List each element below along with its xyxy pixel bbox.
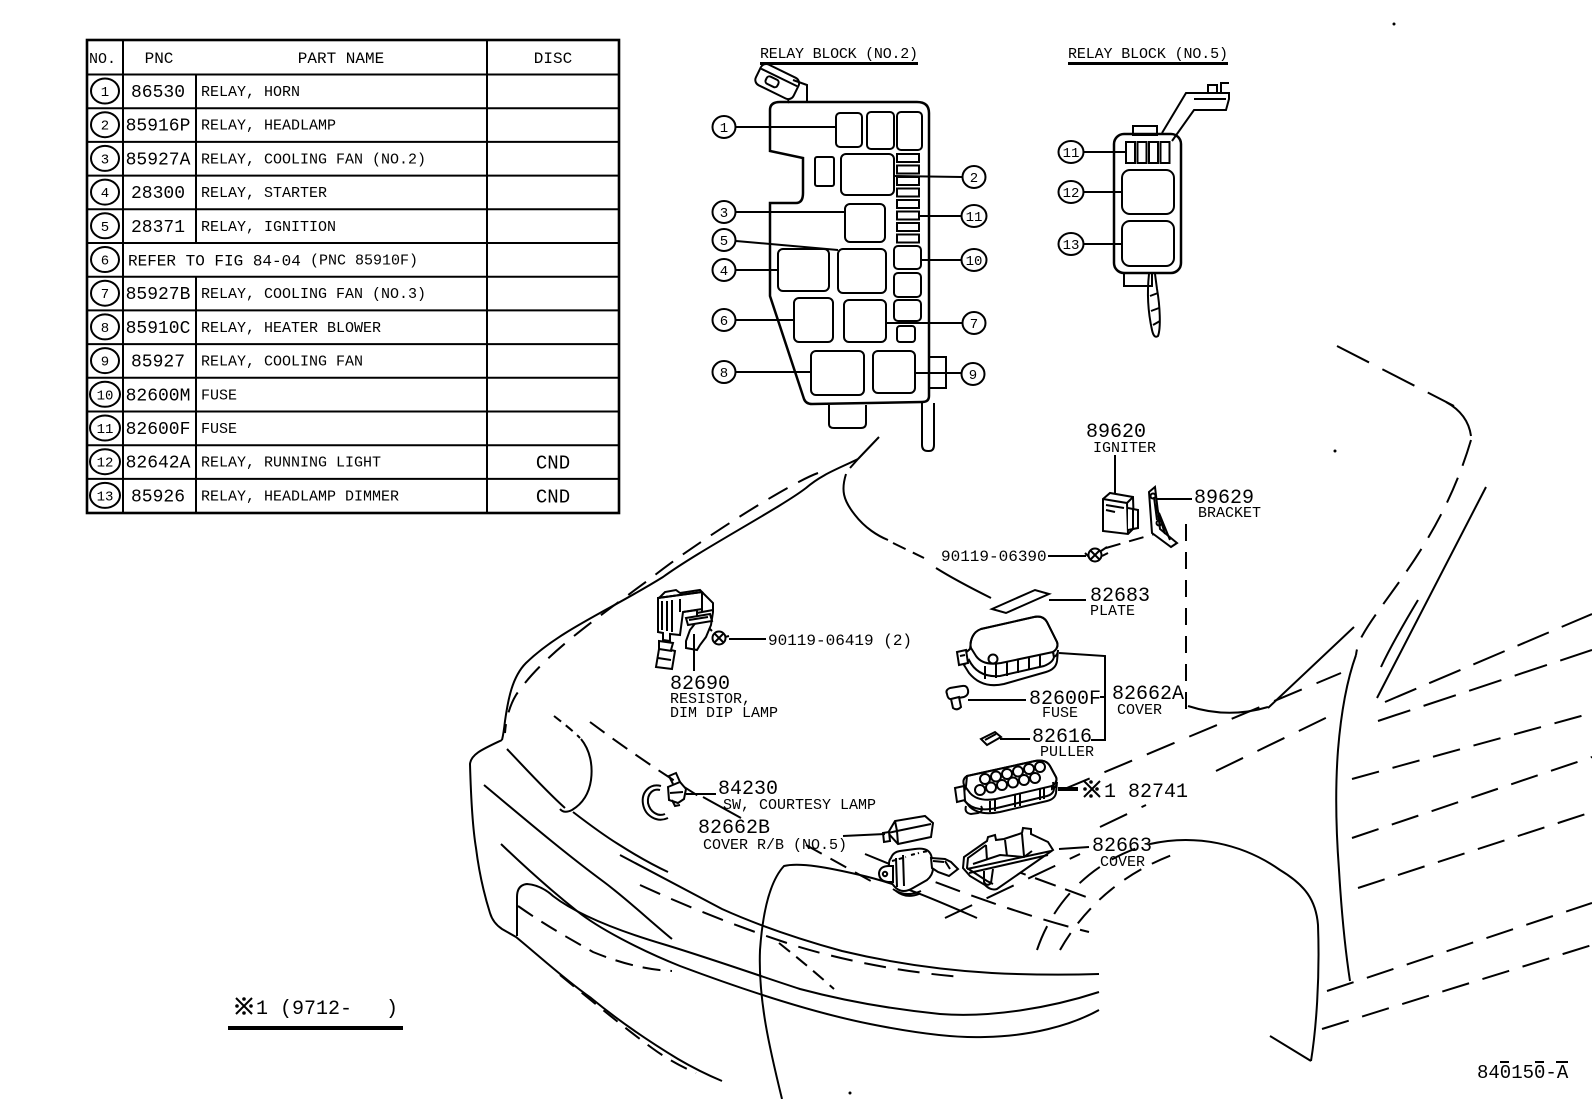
svg-text:6: 6 (720, 314, 728, 330)
svg-text:85927A: 85927A (126, 150, 191, 170)
svg-text:PART NAME: PART NAME (298, 50, 384, 68)
svg-text:11: 11 (1063, 146, 1080, 162)
svg-text:FUSE: FUSE (201, 387, 237, 404)
svg-text:6: 6 (101, 254, 109, 270)
svg-text:1: 1 (720, 121, 728, 137)
svg-text:5: 5 (101, 220, 109, 236)
svg-text:11: 11 (97, 422, 114, 438)
svg-text:PULLER: PULLER (1040, 744, 1094, 761)
svg-text:5: 5 (720, 234, 728, 250)
svg-text:3: 3 (720, 206, 728, 222)
svg-text:9: 9 (969, 368, 977, 384)
svg-text:REFER TO FIG 84-04: REFER TO FIG 84-04 (128, 253, 301, 271)
svg-text:CND: CND (536, 453, 570, 475)
svg-text:FUSE: FUSE (201, 421, 237, 438)
svg-text:82642A: 82642A (126, 454, 191, 474)
svg-text:840150-A: 840150-A (1477, 1062, 1569, 1084)
svg-text:): ) (386, 998, 398, 1021)
svg-text:1 82741: 1 82741 (1104, 781, 1188, 804)
svg-text:85927B: 85927B (126, 285, 191, 305)
svg-text:4: 4 (720, 264, 728, 280)
svg-text:8: 8 (101, 321, 109, 337)
svg-text:(PNC 85910F): (PNC 85910F) (310, 253, 418, 270)
svg-text:10: 10 (97, 388, 114, 404)
svg-text:RELAY, COOLING FAN (NO.2): RELAY, COOLING FAN (NO.2) (201, 151, 426, 168)
svg-text:10: 10 (966, 254, 983, 270)
svg-text:RELAY BLOCK (NO.5): RELAY BLOCK (NO.5) (1068, 46, 1228, 63)
svg-text:8: 8 (720, 366, 728, 382)
svg-text:1: 1 (101, 85, 109, 101)
svg-text:BRACKET: BRACKET (1198, 505, 1261, 522)
svg-text:85910C: 85910C (126, 319, 191, 339)
svg-text:RELAY, HEADLAMP DIMMER: RELAY, HEADLAMP DIMMER (201, 488, 399, 505)
svg-text:NO.: NO. (89, 51, 116, 68)
svg-text:COVER R/B (NO.5): COVER R/B (NO.5) (703, 837, 847, 854)
svg-text:9: 9 (101, 355, 109, 371)
svg-text:PNC: PNC (145, 50, 174, 68)
svg-text:12: 12 (97, 456, 114, 472)
svg-text:DIM DIP LAMP: DIM DIP LAMP (670, 705, 778, 722)
svg-text:2: 2 (101, 119, 109, 135)
svg-text:1 (9712-: 1 (9712- (256, 998, 352, 1021)
svg-text:FUSE: FUSE (1042, 705, 1078, 722)
svg-text:2: 2 (970, 171, 978, 187)
svg-text:IGNITER: IGNITER (1093, 440, 1156, 457)
svg-text:DISC: DISC (534, 50, 572, 68)
svg-text:CND: CND (536, 486, 570, 508)
svg-text:RELAY, HEATER BLOWER: RELAY, HEATER BLOWER (201, 320, 381, 337)
svg-text:SW, COURTESY LAMP: SW, COURTESY LAMP (723, 797, 876, 814)
svg-text:RELAY, HORN: RELAY, HORN (201, 84, 300, 101)
svg-text:3: 3 (101, 152, 109, 168)
svg-text:28371: 28371 (131, 218, 185, 238)
svg-text:13: 13 (1063, 238, 1080, 254)
svg-text:11: 11 (966, 210, 983, 226)
svg-text:RELAY BLOCK (NO.2): RELAY BLOCK (NO.2) (760, 46, 918, 63)
svg-text:RELAY, IGNITION: RELAY, IGNITION (201, 219, 336, 236)
svg-text:85926: 85926 (131, 487, 185, 507)
svg-text:86530: 86530 (131, 83, 185, 103)
svg-text:7: 7 (101, 287, 109, 303)
svg-text:12: 12 (1063, 186, 1080, 202)
svg-text:82600M: 82600M (126, 386, 191, 406)
svg-text:RELAY, COOLING FAN: RELAY, COOLING FAN (201, 354, 363, 371)
svg-text:RELAY, HEADLAMP: RELAY, HEADLAMP (201, 118, 336, 135)
svg-text:COVER: COVER (1100, 854, 1145, 871)
svg-text:90119-06419 (2): 90119-06419 (2) (768, 632, 912, 650)
svg-text:RELAY, RUNNING LIGHT: RELAY, RUNNING LIGHT (201, 455, 381, 472)
svg-text:COVER: COVER (1117, 702, 1162, 719)
svg-text:82600F: 82600F (126, 420, 191, 440)
svg-text:85927: 85927 (131, 353, 185, 373)
svg-text:90119-06390: 90119-06390 (941, 548, 1047, 566)
svg-text:85916P: 85916P (126, 117, 191, 137)
svg-text:RELAY, COOLING FAN (NO.3): RELAY, COOLING FAN (NO.3) (201, 286, 426, 303)
svg-text:PLATE: PLATE (1090, 603, 1135, 620)
svg-text:28300: 28300 (131, 184, 185, 204)
svg-text:RELAY, STARTER: RELAY, STARTER (201, 185, 327, 202)
svg-text:4: 4 (101, 186, 109, 202)
svg-text:13: 13 (97, 489, 114, 505)
svg-text:7: 7 (970, 317, 978, 333)
